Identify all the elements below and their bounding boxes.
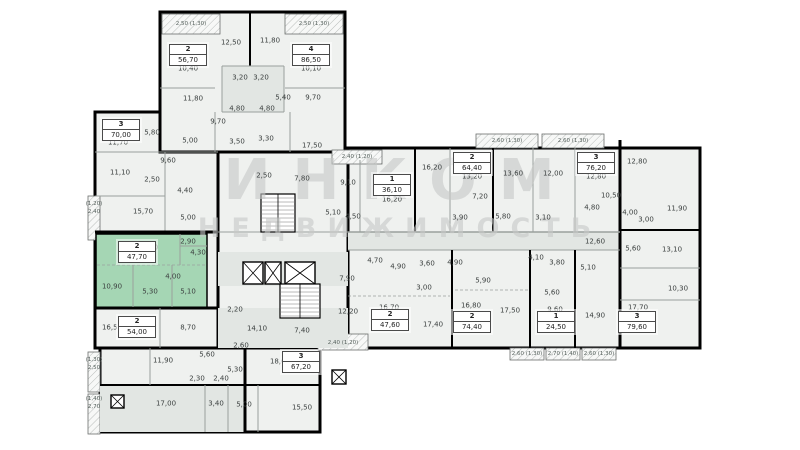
balcony-dimension-label: 2,60 (1,30) bbox=[512, 351, 543, 357]
unit-total-area: 47,60 bbox=[372, 320, 408, 330]
unit-total-area: 76,20 bbox=[578, 163, 614, 173]
balcony-dimension-label: 2,70 bbox=[88, 404, 100, 410]
unit-rooms-count: 2 bbox=[454, 153, 490, 163]
room-area-label: 17,00 bbox=[156, 401, 176, 408]
unit-rooms-count: 1 bbox=[538, 312, 574, 322]
balcony-dimension-label: 2,50 bbox=[88, 365, 100, 371]
room-area-label: 5,10 bbox=[325, 210, 341, 217]
room-area-label: 11,80 bbox=[183, 96, 203, 103]
room-area-label: 17,50 bbox=[302, 143, 322, 150]
unit-total-area: 56,70 bbox=[170, 55, 206, 65]
unit-rooms-count: 3 bbox=[619, 312, 655, 322]
labels-layer: 10,4012,5011,8010,1011,803,203,205,409,7… bbox=[0, 0, 800, 450]
room-area-label: 4,10 bbox=[528, 255, 544, 262]
unit-rooms-count: 2 bbox=[372, 310, 408, 320]
room-area-label: 2,90 bbox=[180, 239, 196, 246]
balcony-dimension-label: 2,70 (1,40) bbox=[548, 351, 579, 357]
unit-total-area: 54,00 bbox=[119, 327, 155, 337]
room-area-label: 15,70 bbox=[133, 209, 153, 216]
room-area-label: 13,10 bbox=[662, 247, 682, 254]
room-area-label: 3,40 bbox=[208, 401, 224, 408]
balcony-dimension-label: 2,50 (1,30) bbox=[299, 21, 330, 27]
unit-label[interactable]: 124,50 bbox=[537, 311, 575, 333]
floor-plan: ИНКОМ НЕДВИЖИМОСТЬ 10,4012,5011,8010,101… bbox=[0, 0, 800, 450]
room-area-label: 2,50 bbox=[144, 177, 160, 184]
unit-rooms-count: 3 bbox=[283, 352, 319, 362]
room-area-label: 12,20 bbox=[338, 309, 358, 316]
unit-label[interactable]: 367,20 bbox=[282, 351, 320, 373]
room-area-label: 4,90 bbox=[390, 264, 406, 271]
unit-label[interactable]: 376,20 bbox=[577, 152, 615, 174]
unit-label[interactable]: 486,50 bbox=[292, 44, 330, 66]
unit-label[interactable]: 256,70 bbox=[169, 44, 207, 66]
unit-total-area: 47,70 bbox=[119, 252, 155, 262]
room-area-label: 5,30 bbox=[142, 289, 158, 296]
room-area-label: 10,30 bbox=[668, 286, 688, 293]
room-area-label: 5,00 bbox=[180, 215, 196, 222]
room-area-label: 9,10 bbox=[340, 180, 356, 187]
room-area-label: 3,20 bbox=[253, 75, 269, 82]
room-area-label: 5,10 bbox=[580, 265, 596, 272]
room-area-label: 16,20 bbox=[422, 165, 442, 172]
room-area-label: 16,20 bbox=[382, 197, 402, 204]
unit-rooms-count: 2 bbox=[119, 317, 155, 327]
room-area-label: 5,00 bbox=[236, 402, 252, 409]
room-area-label: 12,50 bbox=[221, 40, 241, 47]
room-area-label: 7,40 bbox=[294, 328, 310, 335]
room-area-label: 2,50 bbox=[256, 173, 272, 180]
room-area-label: 10,50 bbox=[601, 193, 621, 200]
unit-total-area: 67,20 bbox=[283, 362, 319, 372]
room-area-label: 7,80 bbox=[294, 176, 310, 183]
unit-total-area: 74,40 bbox=[454, 322, 490, 332]
room-area-label: 4,80 bbox=[229, 106, 245, 113]
balcony-dimension-label: 2,60 (1,30) bbox=[584, 351, 615, 357]
unit-total-area: 24,50 bbox=[538, 322, 574, 332]
room-area-label: 3,00 bbox=[638, 217, 654, 224]
room-area-label: 13,60 bbox=[503, 171, 523, 178]
room-area-label: 3,80 bbox=[549, 260, 565, 267]
unit-rooms-count: 2 bbox=[119, 242, 155, 252]
balcony-dimension-label: 2,40 (1,20) bbox=[328, 340, 359, 346]
unit-rooms-count: 2 bbox=[454, 312, 490, 322]
room-area-label: 4,90 bbox=[447, 260, 463, 267]
room-area-label: 9,60 bbox=[160, 158, 176, 165]
room-area-label: 3,30 bbox=[258, 136, 274, 143]
room-area-label: 4,30 bbox=[190, 250, 206, 257]
room-area-label: 5,60 bbox=[199, 352, 215, 359]
unit-label[interactable]: 136,10 bbox=[373, 174, 411, 196]
room-area-label: 3,50 bbox=[229, 139, 245, 146]
unit-total-area: 79,60 bbox=[619, 322, 655, 332]
unit-rooms-count: 2 bbox=[170, 45, 206, 55]
room-area-label: 13,20 bbox=[462, 174, 482, 181]
balcony-dimension-label: 2,60 (1,30) bbox=[492, 138, 523, 144]
unit-label[interactable]: 370,00 bbox=[102, 119, 140, 141]
room-area-label: 5,80 bbox=[144, 130, 160, 137]
unit-total-area: 86,50 bbox=[293, 55, 329, 65]
room-area-label: 12,80 bbox=[586, 174, 606, 181]
room-area-label: 11,90 bbox=[667, 206, 687, 213]
room-area-label: 3,20 bbox=[232, 75, 248, 82]
room-area-label: 12,00 bbox=[543, 171, 563, 178]
room-area-label: 14,10 bbox=[247, 326, 267, 333]
balcony-dimension-label: (1,30) bbox=[86, 357, 103, 363]
room-area-label: 5,60 bbox=[544, 290, 560, 297]
room-area-label: 14,90 bbox=[585, 313, 605, 320]
room-area-label: 10,10 bbox=[301, 66, 321, 73]
balcony-dimension-label: (1,40) bbox=[86, 396, 103, 402]
room-area-label: 5,90 bbox=[475, 278, 491, 285]
unit-label[interactable]: 247,60 bbox=[371, 309, 409, 331]
room-area-label: 12,80 bbox=[627, 159, 647, 166]
room-area-label: 11,10 bbox=[110, 170, 130, 177]
room-area-label: 10,90 bbox=[102, 284, 122, 291]
room-area-label: 4,00 bbox=[622, 210, 638, 217]
room-area-label: 4,80 bbox=[584, 205, 600, 212]
room-area-label: 9,70 bbox=[305, 95, 321, 102]
room-area-label: 4,70 bbox=[367, 258, 383, 265]
unit-label[interactable]: 274,40 bbox=[453, 311, 491, 333]
room-area-label: 15,50 bbox=[292, 405, 312, 412]
room-area-label: 3,10 bbox=[535, 215, 551, 222]
unit-label[interactable]: 254,00 bbox=[118, 316, 156, 338]
balcony-dimension-label: 2,40 bbox=[88, 209, 100, 215]
room-area-label: 4,00 bbox=[165, 274, 181, 281]
unit-label-selected[interactable]: 247,70 bbox=[118, 241, 156, 263]
room-area-label: 10,40 bbox=[178, 66, 198, 73]
room-area-label: 2,30 bbox=[189, 376, 205, 383]
room-area-label: 5,40 bbox=[275, 95, 291, 102]
balcony-dimension-label: 2,50 (1,30) bbox=[176, 21, 207, 27]
room-area-label: 4,40 bbox=[177, 188, 193, 195]
room-area-label: 7,20 bbox=[472, 194, 488, 201]
unit-rooms-count: 3 bbox=[103, 120, 139, 130]
room-area-label: 9,70 bbox=[210, 119, 226, 126]
room-area-label: 2,40 bbox=[213, 376, 229, 383]
room-area-label: 3,60 bbox=[419, 261, 435, 268]
room-area-label: 5,80 bbox=[495, 214, 511, 221]
room-area-label: 3,90 bbox=[452, 215, 468, 222]
room-area-label: 4,80 bbox=[259, 106, 275, 113]
room-area-label: 2,60 bbox=[233, 343, 249, 350]
unit-rooms-count: 1 bbox=[374, 175, 410, 185]
room-area-label: 5,10 bbox=[180, 289, 196, 296]
room-area-label: 11,80 bbox=[260, 38, 280, 45]
unit-rooms-count: 4 bbox=[293, 45, 329, 55]
room-area-label: 7,90 bbox=[339, 276, 355, 283]
room-area-label: 2,20 bbox=[227, 307, 243, 314]
room-area-label: 17,40 bbox=[423, 322, 443, 329]
room-area-label: 11,90 bbox=[153, 358, 173, 365]
unit-total-area: 36,10 bbox=[374, 185, 410, 195]
room-area-label: 17,50 bbox=[500, 308, 520, 315]
room-area-label: 16,80 bbox=[461, 303, 481, 310]
room-area-label: 5,30 bbox=[227, 367, 243, 374]
unit-rooms-count: 3 bbox=[578, 153, 614, 163]
balcony-dimension-label: 2,60 (1,30) bbox=[558, 138, 589, 144]
balcony-dimension-label: 2,40 (1,20) bbox=[342, 154, 373, 160]
room-area-label: 8,70 bbox=[180, 325, 196, 332]
unit-label[interactable]: 264,40 bbox=[453, 152, 491, 174]
unit-label[interactable]: 379,60 bbox=[618, 311, 656, 333]
room-area-label: 5,60 bbox=[625, 246, 641, 253]
unit-total-area: 64,40 bbox=[454, 163, 490, 173]
room-area-label: 3,00 bbox=[416, 285, 432, 292]
room-area-label: 5,00 bbox=[182, 138, 198, 145]
room-area-label: 4,50 bbox=[345, 214, 361, 221]
unit-total-area: 70,00 bbox=[103, 130, 139, 140]
balcony-dimension-label: (1,20) bbox=[86, 201, 103, 207]
room-area-label: 12,60 bbox=[585, 239, 605, 246]
